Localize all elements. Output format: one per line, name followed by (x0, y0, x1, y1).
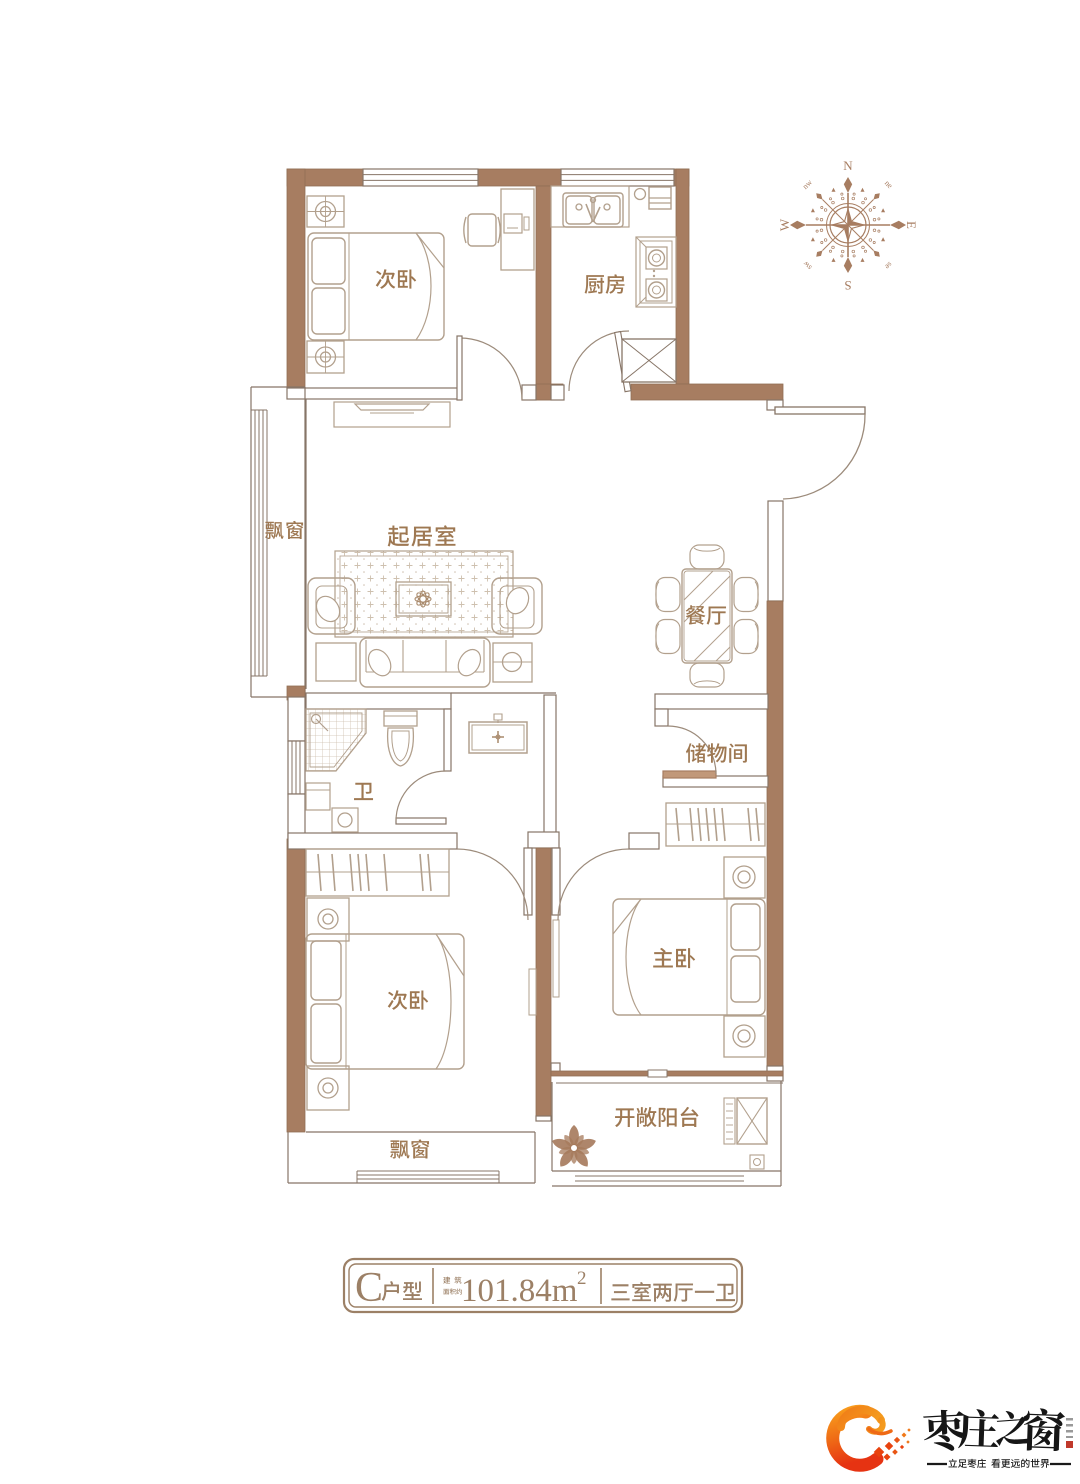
svg-text:N: N (843, 158, 853, 173)
svg-text:E: E (904, 221, 919, 229)
svg-text:101.84m: 101.84m (461, 1273, 578, 1309)
svg-text:C: C (355, 1265, 383, 1311)
svg-text:W: W (777, 218, 792, 231)
svg-text:2: 2 (577, 1268, 587, 1289)
svg-text:S: S (844, 278, 851, 293)
